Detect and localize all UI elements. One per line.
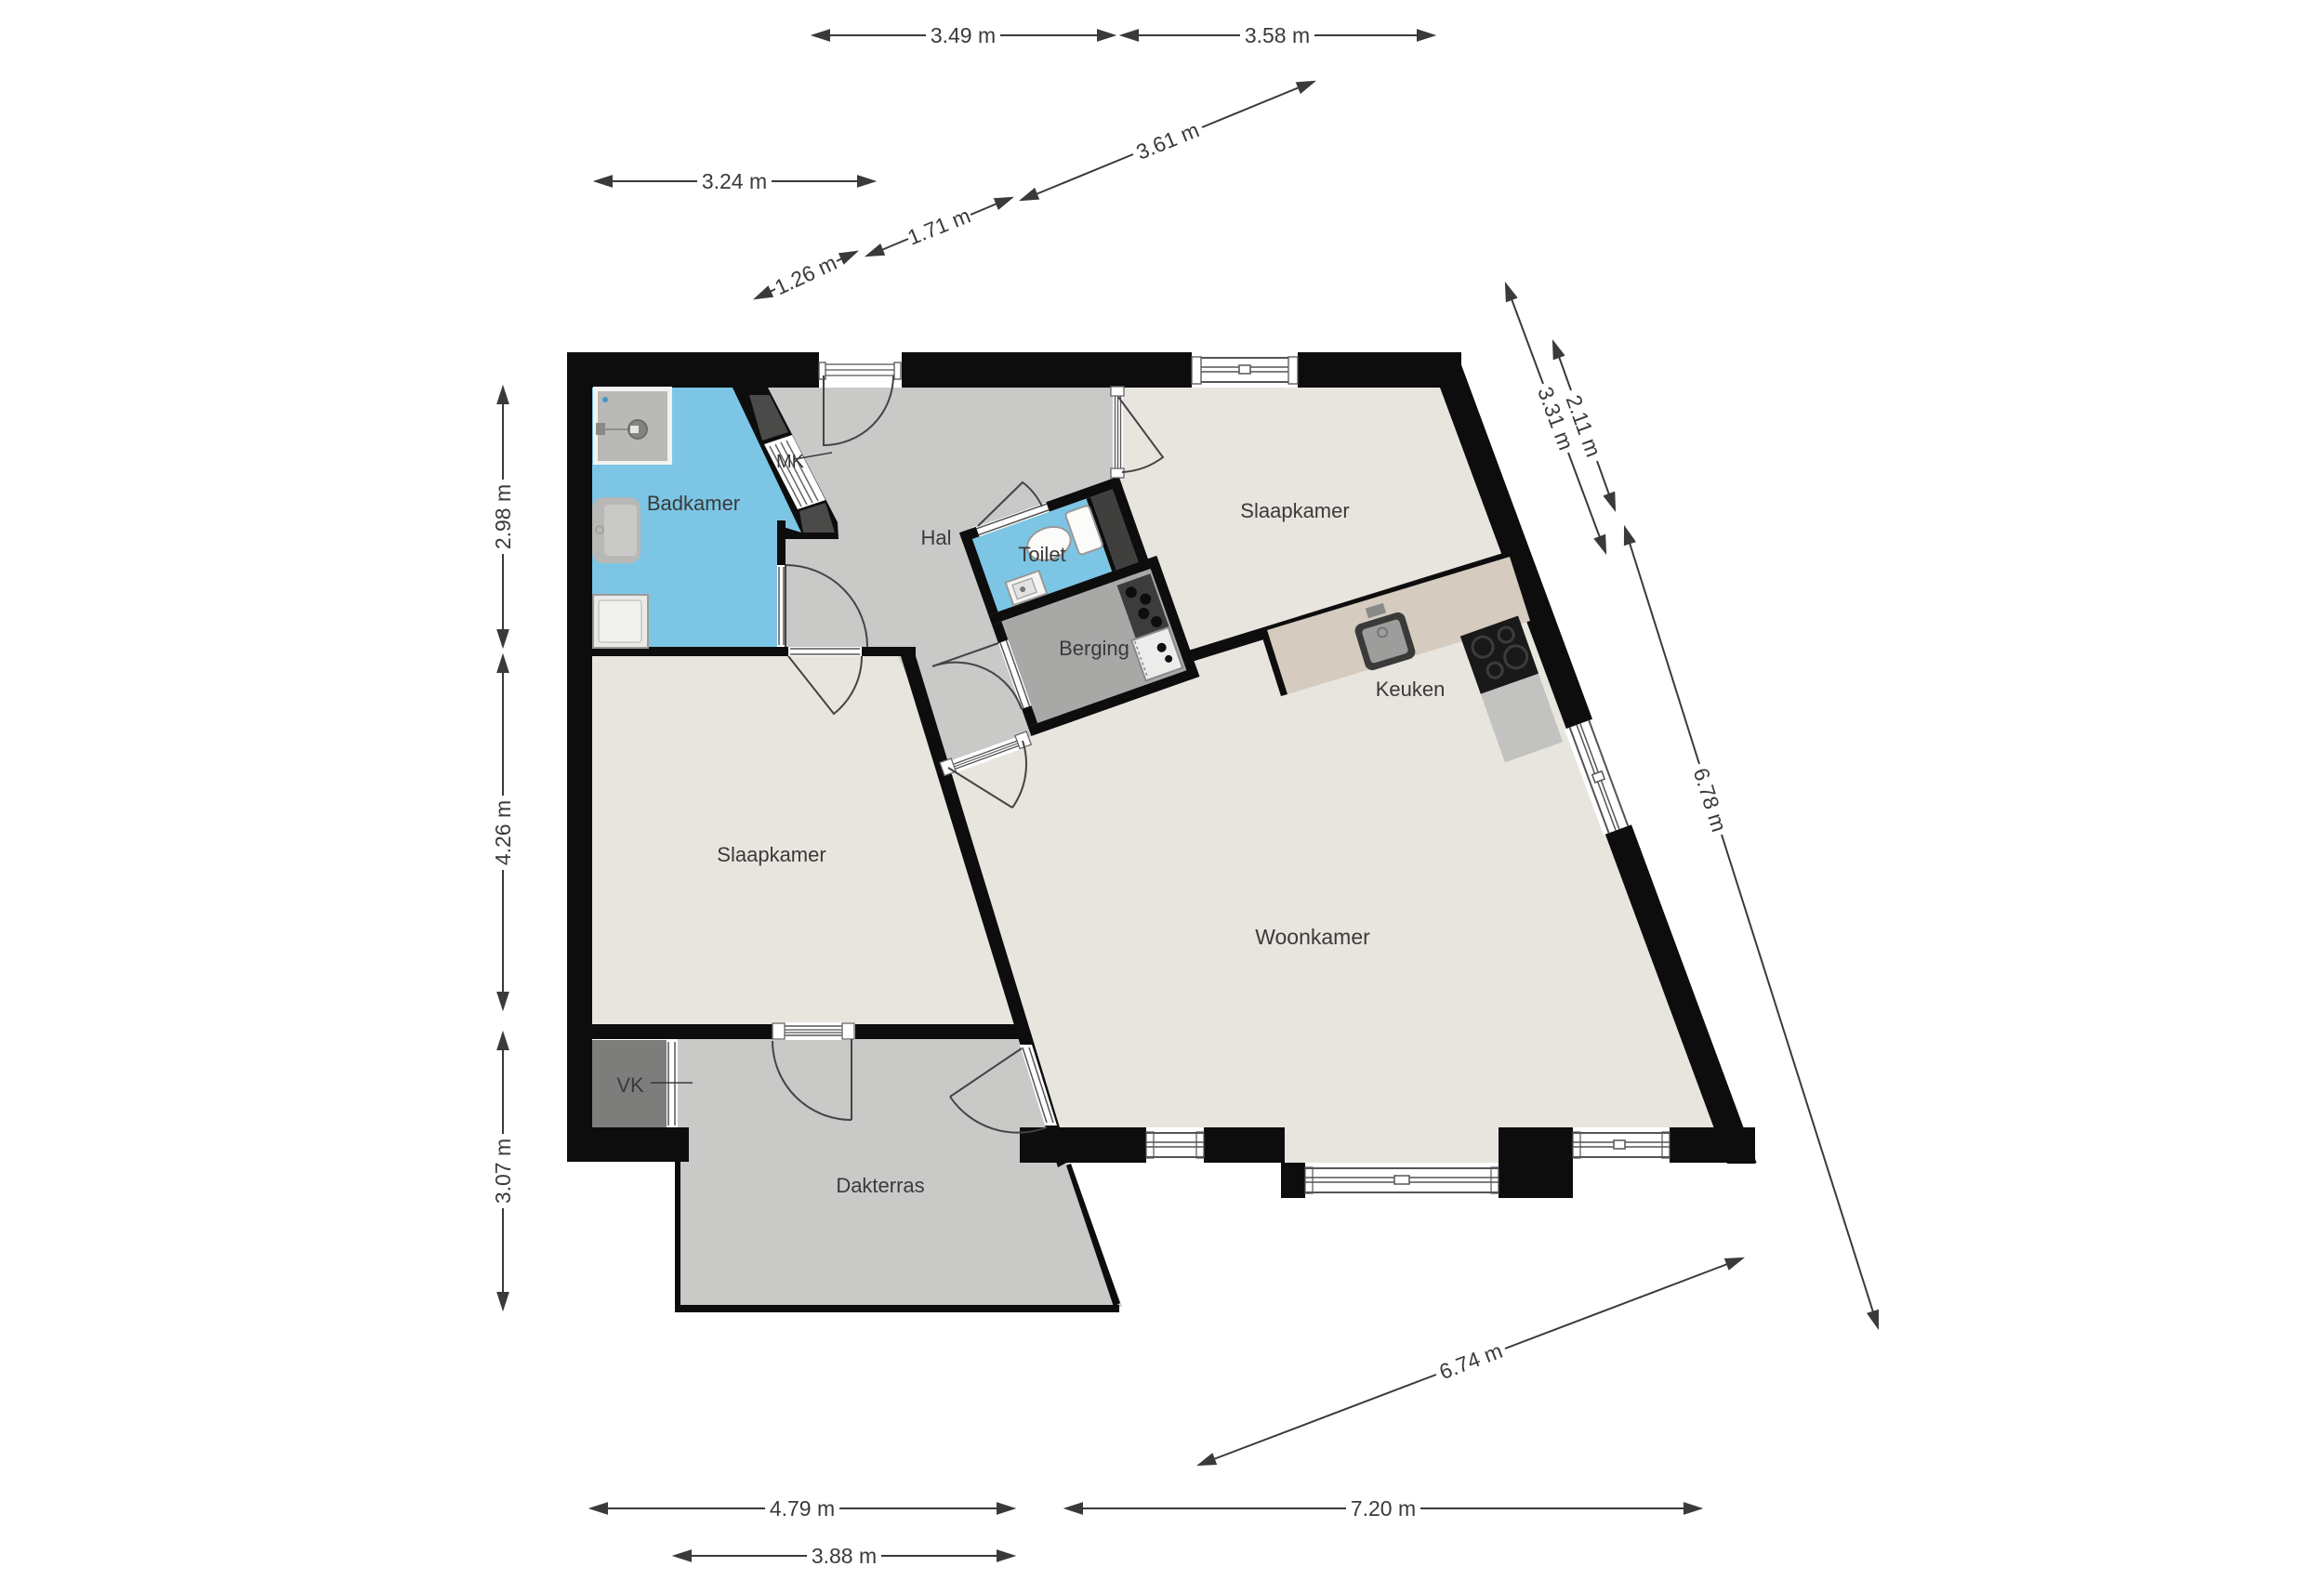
svg-text:VK: VK — [616, 1073, 644, 1097]
svg-text:4.26 m: 4.26 m — [491, 800, 515, 865]
svg-text:Keuken: Keuken — [1376, 678, 1446, 701]
svg-text:Badkamer: Badkamer — [647, 492, 740, 515]
svg-text:MK: MK — [776, 452, 805, 472]
svg-text:Berging: Berging — [1059, 637, 1129, 660]
svg-text:3.07 m: 3.07 m — [491, 1139, 515, 1204]
svg-text:3.49 m: 3.49 m — [931, 23, 996, 47]
svg-text:Dakterras: Dakterras — [836, 1174, 924, 1197]
svg-text:Hal: Hal — [920, 526, 951, 549]
svg-text:Slaapkamer: Slaapkamer — [1240, 499, 1349, 522]
svg-text:4.79 m: 4.79 m — [770, 1496, 835, 1521]
svg-text:3.58 m: 3.58 m — [1245, 23, 1310, 47]
svg-text:7.20 m: 7.20 m — [1351, 1496, 1416, 1521]
svg-text:3.24 m: 3.24 m — [702, 169, 767, 193]
svg-text:Toilet: Toilet — [1018, 543, 1065, 566]
svg-text:Woonkamer: Woonkamer — [1255, 925, 1370, 949]
svg-text:3.88 m: 3.88 m — [812, 1544, 877, 1568]
svg-text:2.98 m: 2.98 m — [491, 484, 515, 549]
svg-text:Slaapkamer: Slaapkamer — [717, 843, 825, 866]
